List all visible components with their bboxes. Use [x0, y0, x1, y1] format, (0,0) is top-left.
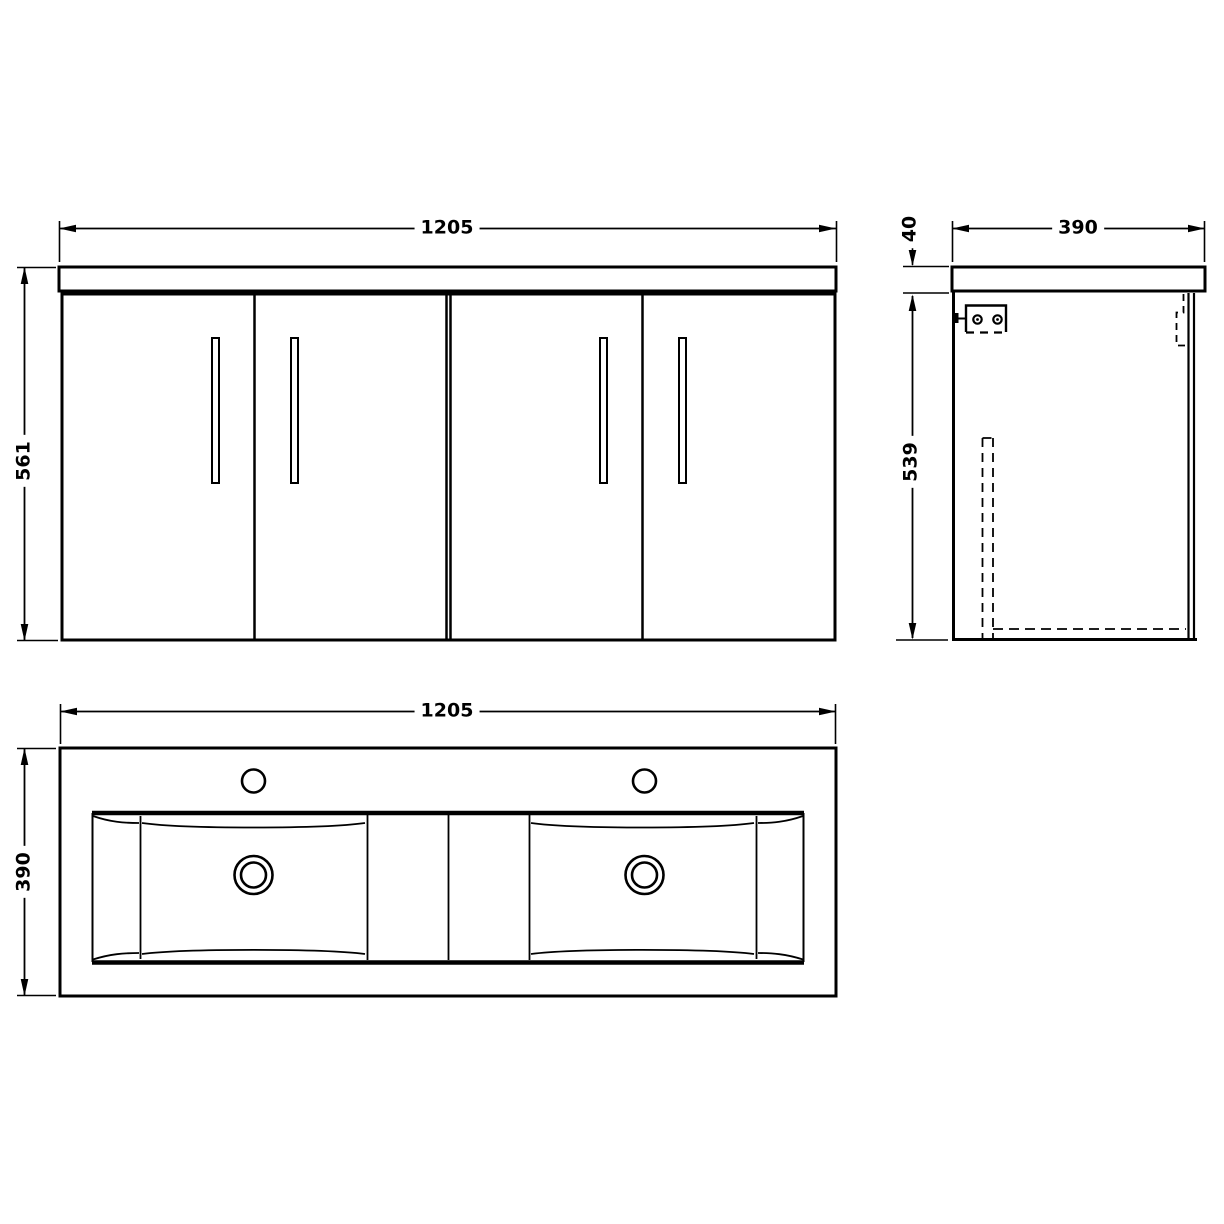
- side-thickness-dimension: [903, 242, 949, 293]
- side-counter-thickness-label: 40: [900, 210, 921, 248]
- plan-width-label: 1205: [415, 701, 480, 722]
- plan-view: [60, 748, 836, 996]
- door-handle: [600, 338, 607, 483]
- door-handle: [679, 338, 686, 483]
- door-handle: [212, 338, 219, 483]
- wall-bracket: [952, 306, 1006, 333]
- front-width-label: 1205: [415, 218, 480, 239]
- side-body-height-label: 539: [901, 436, 922, 488]
- side-counter-top: [952, 267, 1205, 291]
- front-counter-top: [59, 267, 836, 291]
- side-hidden-hanging-rail: [1177, 294, 1189, 346]
- vanity-technical-drawing: [0, 0, 1224, 1224]
- front-view: [59, 267, 836, 640]
- front-height-label: 561: [14, 435, 35, 487]
- side-view: [952, 267, 1205, 641]
- side-hidden-door-panel: [983, 438, 994, 639]
- plan-depth-label: 390: [14, 846, 35, 898]
- side-depth-label: 390: [1052, 218, 1104, 239]
- door-handle: [291, 338, 298, 483]
- front-cabinet-body: [62, 294, 835, 640]
- vanity-technical-drawing-page: 1205 561 40 390 539 1205 390: [0, 0, 1224, 1224]
- side-back-panel: [1189, 293, 1195, 639]
